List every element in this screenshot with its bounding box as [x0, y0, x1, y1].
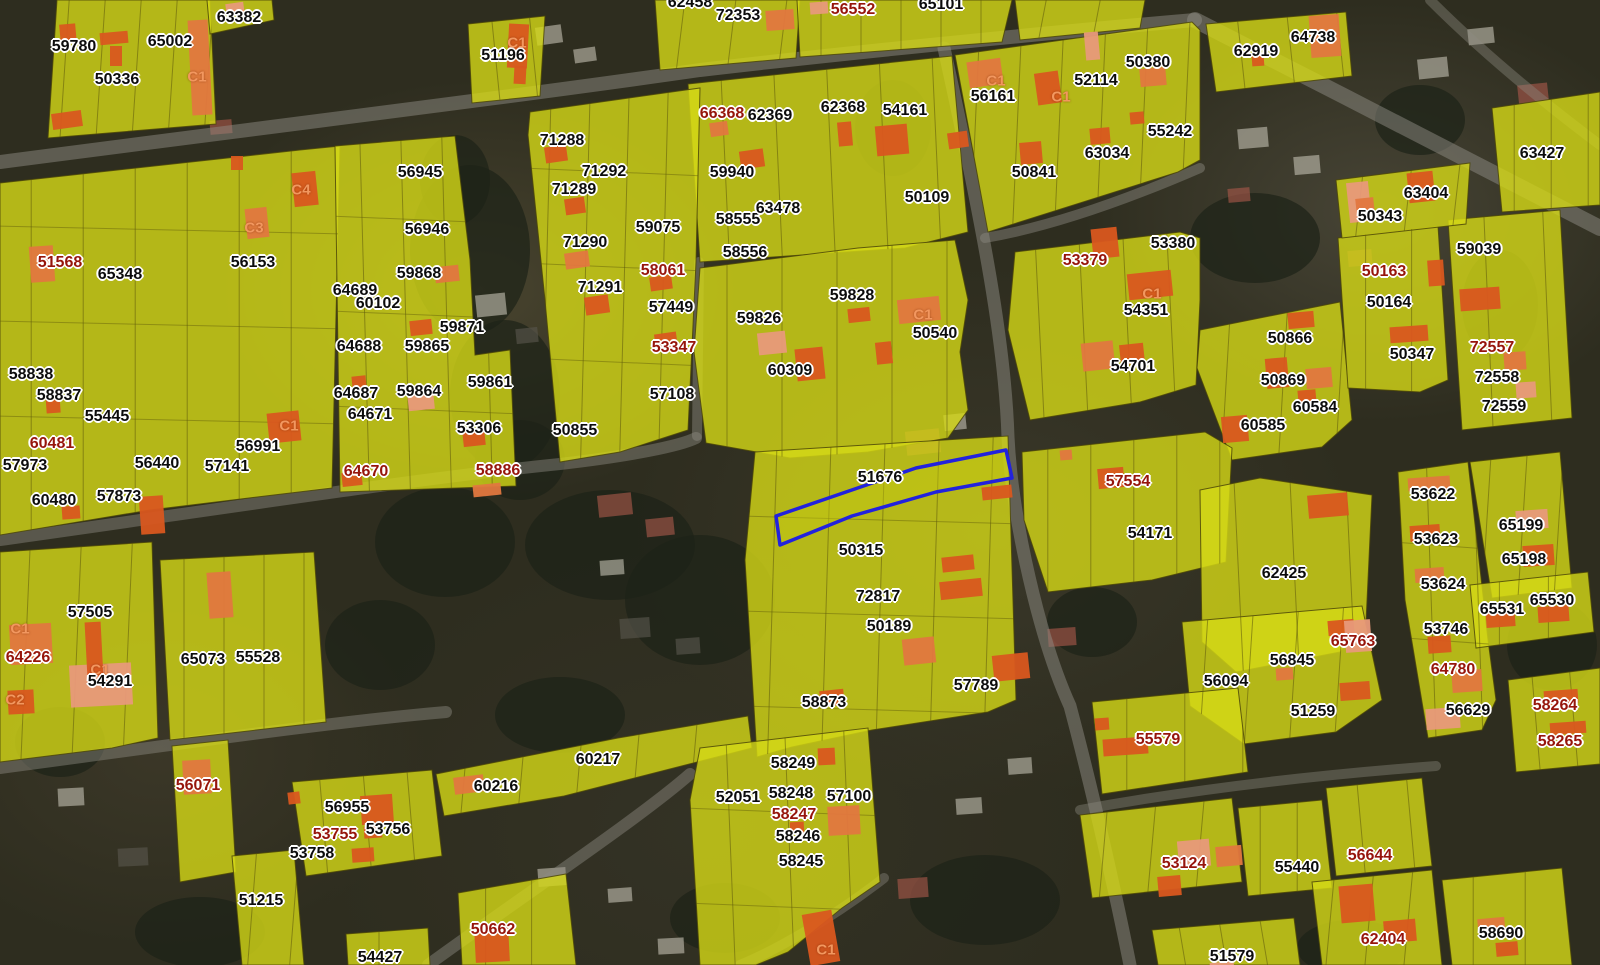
parcel-label[interactable]: 54351: [1124, 303, 1169, 319]
photo-house: [1237, 127, 1269, 150]
parcel-label[interactable]: 65101: [919, 0, 964, 13]
tree-blob: [375, 487, 515, 597]
parcel-label[interactable]: 60309: [768, 363, 813, 379]
parcel-label[interactable]: 50189: [867, 619, 912, 635]
building-footprint: [847, 307, 870, 323]
parcel-label[interactable]: 62368: [821, 100, 866, 116]
building-label: C1: [10, 622, 29, 637]
parcel-label[interactable]: 60102: [356, 296, 401, 312]
parcel-label[interactable]: 58837: [37, 388, 82, 404]
building-footprint: [1060, 449, 1073, 460]
building-footprint: [206, 571, 233, 619]
parcel-label[interactable]: 51215: [239, 893, 284, 909]
building-footprint: [757, 331, 787, 356]
building-footprint: [810, 1, 829, 14]
tree-blob: [1047, 587, 1137, 657]
building-footprint: [139, 495, 166, 535]
parcel-label[interactable]: 71292: [582, 164, 627, 180]
parcel-label[interactable]: 63382: [217, 10, 262, 26]
parcel-label[interactable]: 50347: [1390, 347, 1435, 363]
parcel-label[interactable]: 50841: [1012, 165, 1057, 181]
parcel-label[interactable]: 56071: [176, 778, 221, 794]
parcel-label[interactable]: 59865: [405, 339, 450, 355]
building-footprint: [287, 791, 300, 804]
building-footprint: [110, 46, 122, 66]
building-label: C4: [291, 183, 310, 198]
building-footprint: [1157, 875, 1182, 897]
photo-house: [1007, 757, 1032, 775]
photo-house: [1293, 155, 1320, 175]
parcel-label[interactable]: 56629: [1446, 703, 1491, 719]
parcel-label[interactable]: 71290: [563, 235, 608, 251]
building-footprint: [818, 748, 836, 766]
parcel-label[interactable]: 53624: [1421, 577, 1466, 593]
parcel-label[interactable]: 53758: [290, 846, 335, 862]
parcel-label[interactable]: 65199: [1499, 518, 1544, 534]
parcel-label[interactable]: 64780: [1431, 662, 1476, 678]
parcel-label[interactable]: 58247: [772, 807, 817, 823]
parcel-label[interactable]: 53306: [457, 421, 502, 437]
parcel-label[interactable]: 54161: [883, 103, 928, 119]
parcel-label[interactable]: 55528: [236, 650, 281, 666]
parcel-label[interactable]: 50109: [905, 190, 950, 206]
parcel-label[interactable]: 55579: [1136, 732, 1181, 748]
parcel-label[interactable]: 50380: [1126, 55, 1171, 71]
parcel-block[interactable]: [797, 0, 1012, 57]
parcel-block[interactable]: [160, 552, 326, 740]
parcel-block[interactable]: [694, 240, 968, 458]
parcel-label[interactable]: 64671: [348, 407, 393, 423]
parcel-label[interactable]: 57873: [97, 489, 142, 505]
parcel-label[interactable]: 65530: [1530, 593, 1575, 609]
parcel-label[interactable]: 55440: [1275, 860, 1320, 876]
parcel-label[interactable]: 55242: [1148, 124, 1193, 140]
photo-house: [897, 877, 928, 899]
parcel-block[interactable]: [688, 56, 968, 262]
parcel-label[interactable]: 51579: [1210, 949, 1255, 965]
parcel-label[interactable]: 53380: [1151, 236, 1196, 252]
parcel-label[interactable]: 56946: [405, 222, 450, 238]
parcel-label[interactable]: 57505: [68, 605, 113, 621]
building-label: C2: [5, 693, 24, 708]
parcel-label[interactable]: 53746: [1424, 622, 1469, 638]
building-footprint: [514, 66, 527, 85]
parcel-label[interactable]: 60216: [474, 779, 519, 795]
parcel-label[interactable]: 56161: [971, 89, 1016, 105]
building-label: C1: [187, 70, 206, 85]
parcel-label[interactable]: 52051: [716, 790, 761, 806]
photo-house: [675, 637, 700, 655]
parcel-label[interactable]: 62404: [1361, 932, 1406, 948]
building-footprint: [1287, 311, 1314, 329]
parcel-label[interactable]: 58248: [769, 786, 814, 802]
parcel-block[interactable]: [0, 146, 340, 535]
parcel-block[interactable]: [1508, 668, 1600, 772]
parcel-label[interactable]: 59861: [468, 375, 513, 391]
building-footprint: [352, 847, 375, 863]
building-footprint: [1427, 259, 1445, 286]
building-label: C1: [279, 419, 298, 434]
parcel-label[interactable]: 64226: [6, 650, 51, 666]
parcel-label[interactable]: 58555: [716, 212, 761, 228]
parcel-label[interactable]: 64670: [344, 464, 389, 480]
parcel-label[interactable]: 56552: [831, 2, 876, 18]
parcel-label[interactable]: 64688: [337, 339, 382, 355]
parcel-label[interactable]: 62919: [1234, 44, 1279, 60]
parcel-block[interactable]: [1312, 870, 1442, 965]
parcel-label[interactable]: 51676: [858, 470, 903, 486]
building-footprint: [1495, 941, 1518, 957]
parcel-label[interactable]: 59864: [397, 384, 442, 400]
parcel-label[interactable]: 53622: [1411, 487, 1456, 503]
parcel-label[interactable]: 53379: [1063, 253, 1108, 269]
building-footprint: [1095, 718, 1110, 731]
building-footprint: [837, 121, 853, 146]
building-label: C3: [244, 221, 263, 236]
building-footprint: [827, 805, 860, 836]
building-footprint: [1339, 681, 1370, 701]
parcel-label[interactable]: 72353: [716, 8, 761, 24]
building-label: C1: [913, 308, 932, 323]
building-footprint: [564, 250, 590, 269]
tree-blob: [1190, 193, 1320, 283]
photo-house: [1417, 56, 1449, 79]
parcel-label[interactable]: 57100: [827, 789, 872, 805]
parcel-label[interactable]: 50662: [471, 922, 516, 938]
parcel-label[interactable]: 59039: [1457, 242, 1502, 258]
building-footprint: [1084, 31, 1100, 60]
parcel-label[interactable]: 53623: [1414, 532, 1459, 548]
parcel-label[interactable]: 65348: [98, 267, 143, 283]
parcel-label[interactable]: 59871: [440, 320, 485, 336]
parcel-label[interactable]: 53347: [652, 340, 697, 356]
parcel-label[interactable]: 50164: [1367, 295, 1412, 311]
building-footprint: [584, 294, 610, 315]
building-label: C1: [816, 943, 835, 958]
building-footprint: [1389, 325, 1428, 344]
parcel-label[interactable]: 72559: [1482, 399, 1527, 415]
parcel-label[interactable]: 62458: [668, 0, 713, 11]
photo-house: [619, 617, 650, 639]
parcel-label[interactable]: 59828: [830, 288, 875, 304]
parcel-label[interactable]: 72557: [1470, 340, 1515, 356]
parcel-label[interactable]: 57973: [3, 458, 48, 474]
photo-house: [58, 787, 85, 806]
parcel-label[interactable]: 59075: [636, 220, 681, 236]
photo-house: [118, 847, 149, 867]
building-label: C1: [1051, 90, 1070, 105]
parcel-label[interactable]: 63034: [1085, 146, 1130, 162]
parcel-label[interactable]: 58245: [779, 854, 824, 870]
parcel-label[interactable]: 60481: [30, 436, 75, 452]
parcel-label[interactable]: 57449: [649, 300, 694, 316]
parcel-label[interactable]: 58265: [1538, 734, 1583, 750]
parcel-label[interactable]: 54427: [358, 950, 403, 965]
building-footprint: [709, 121, 729, 137]
photo-house: [475, 292, 507, 317]
photo-house: [1227, 187, 1250, 203]
building-footprint: [1338, 884, 1375, 924]
parcel-label[interactable]: 57554: [1106, 474, 1151, 490]
parcel-label[interactable]: 71289: [552, 182, 597, 198]
building-label: C1: [986, 74, 1005, 89]
parcel-label[interactable]: 50315: [839, 543, 884, 559]
building-label: C1: [1142, 287, 1161, 302]
building-footprint: [902, 636, 937, 665]
parcel-label[interactable]: 56094: [1204, 674, 1249, 690]
parcel-label[interactable]: 64738: [1291, 30, 1336, 46]
parcel-label[interactable]: 71288: [540, 133, 585, 149]
parcel-label[interactable]: 59868: [397, 266, 442, 282]
photo-house: [597, 492, 633, 517]
parcel-label[interactable]: 54171: [1128, 526, 1173, 542]
building-footprint: [409, 319, 432, 336]
parcel-label[interactable]: 60585: [1241, 418, 1286, 434]
parcel-label[interactable]: 65531: [1480, 602, 1525, 618]
building-footprint: [765, 9, 794, 31]
parcel-label[interactable]: 50855: [553, 423, 598, 439]
building-label: C1: [507, 36, 526, 51]
parcel-label[interactable]: 56945: [398, 165, 443, 181]
building-footprint: [1019, 141, 1043, 165]
parcel-label[interactable]: 62425: [1262, 566, 1307, 582]
parcel-label[interactable]: 71291: [578, 280, 623, 296]
parcel-label[interactable]: 57108: [650, 387, 695, 403]
parcel-label[interactable]: 54291: [88, 674, 133, 690]
parcel-label[interactable]: 56153: [231, 255, 276, 271]
building-footprint: [947, 131, 969, 150]
building-footprint: [1089, 127, 1110, 145]
parcel-label[interactable]: 72558: [1475, 370, 1520, 386]
parcel-label[interactable]: 57789: [954, 678, 999, 694]
building-footprint: [100, 31, 129, 45]
parcel-label[interactable]: 63478: [756, 201, 801, 217]
parcel-label[interactable]: 58246: [776, 829, 821, 845]
parcel-label[interactable]: 60480: [32, 493, 77, 509]
photo-house: [600, 559, 625, 576]
parcel-label[interactable]: 50540: [913, 326, 958, 342]
parcel-label[interactable]: 52114: [1074, 73, 1118, 89]
parcel-label[interactable]: 64687: [334, 386, 379, 402]
building-footprint: [1215, 845, 1243, 867]
parcel-label[interactable]: 50866: [1268, 331, 1313, 347]
building-footprint: [231, 156, 243, 170]
parcel-label[interactable]: 59940: [710, 165, 755, 181]
parcel-label[interactable]: 50343: [1358, 209, 1403, 225]
parcel-label[interactable]: 62369: [748, 108, 793, 124]
photo-house: [658, 937, 685, 954]
parcel-label[interactable]: 56440: [135, 456, 180, 472]
parcel-label[interactable]: 60217: [576, 752, 621, 768]
parcel-label[interactable]: 58886: [476, 463, 521, 479]
photo-house: [515, 327, 538, 344]
parcel-label[interactable]: 58873: [802, 695, 847, 711]
building-footprint: [875, 124, 909, 157]
building-footprint: [564, 197, 586, 216]
parcel-label[interactable]: 63427: [1520, 146, 1565, 162]
parcel-label[interactable]: 55445: [85, 409, 130, 425]
parcel-label[interactable]: 53755: [313, 827, 358, 843]
building-footprint: [875, 341, 893, 365]
photo-house: [573, 47, 597, 64]
building-footprint: [1130, 111, 1145, 124]
parcel-label[interactable]: 51568: [38, 255, 83, 271]
parcel-label[interactable]: 57141: [205, 459, 250, 475]
parcel-label[interactable]: 56991: [236, 439, 281, 455]
parcel-label[interactable]: 58838: [9, 367, 54, 383]
parcel-label[interactable]: 59780: [52, 39, 97, 55]
building-footprint: [1276, 667, 1294, 680]
parcel-label[interactable]: 58556: [723, 245, 768, 261]
parcel-label[interactable]: 59826: [737, 311, 782, 327]
photo-house: [645, 517, 675, 538]
parcel-label[interactable]: 53756: [366, 822, 411, 838]
tree-blob: [910, 855, 1060, 945]
building-footprint: [1427, 635, 1451, 654]
parcel-label[interactable]: 51259: [1291, 704, 1336, 720]
map-canvas[interactable]: 597806500250336C163382C4C351196C16245872…: [0, 0, 1600, 965]
parcel-label[interactable]: 72817: [856, 589, 901, 605]
building-footprint: [1459, 287, 1500, 312]
parcel-label[interactable]: 60584: [1293, 400, 1338, 416]
parcel-label[interactable]: 58264: [1533, 698, 1578, 714]
parcel-label[interactable]: 63404: [1404, 186, 1449, 202]
parcel-label[interactable]: 65002: [148, 34, 193, 50]
photo-house: [608, 887, 633, 903]
parcel-label[interactable]: 56644: [1348, 848, 1393, 864]
parcel-label[interactable]: 54701: [1111, 359, 1156, 375]
parcel-label[interactable]: 65763: [1331, 634, 1376, 650]
parcel-label[interactable]: 65198: [1502, 552, 1547, 568]
parcel-label[interactable]: 65073: [181, 652, 226, 668]
parcel-label[interactable]: 53124: [1162, 856, 1207, 872]
parcel-label[interactable]: 58249: [771, 756, 816, 772]
parcel-label[interactable]: 56845: [1270, 653, 1315, 669]
photo-house: [955, 797, 982, 815]
tree-blob: [325, 600, 435, 690]
parcel-label[interactable]: 66368: [700, 106, 745, 122]
parcel-label[interactable]: 58690: [1479, 926, 1524, 942]
parcel-label[interactable]: 50336: [95, 72, 140, 88]
building-footprint: [1305, 367, 1333, 389]
parcel-label[interactable]: 58061: [641, 263, 686, 279]
parcel-label[interactable]: 50163: [1362, 264, 1407, 280]
building-footprint: [1307, 492, 1349, 518]
parcel-label[interactable]: 56955: [325, 800, 370, 816]
parcel-label[interactable]: 50869: [1261, 373, 1306, 389]
